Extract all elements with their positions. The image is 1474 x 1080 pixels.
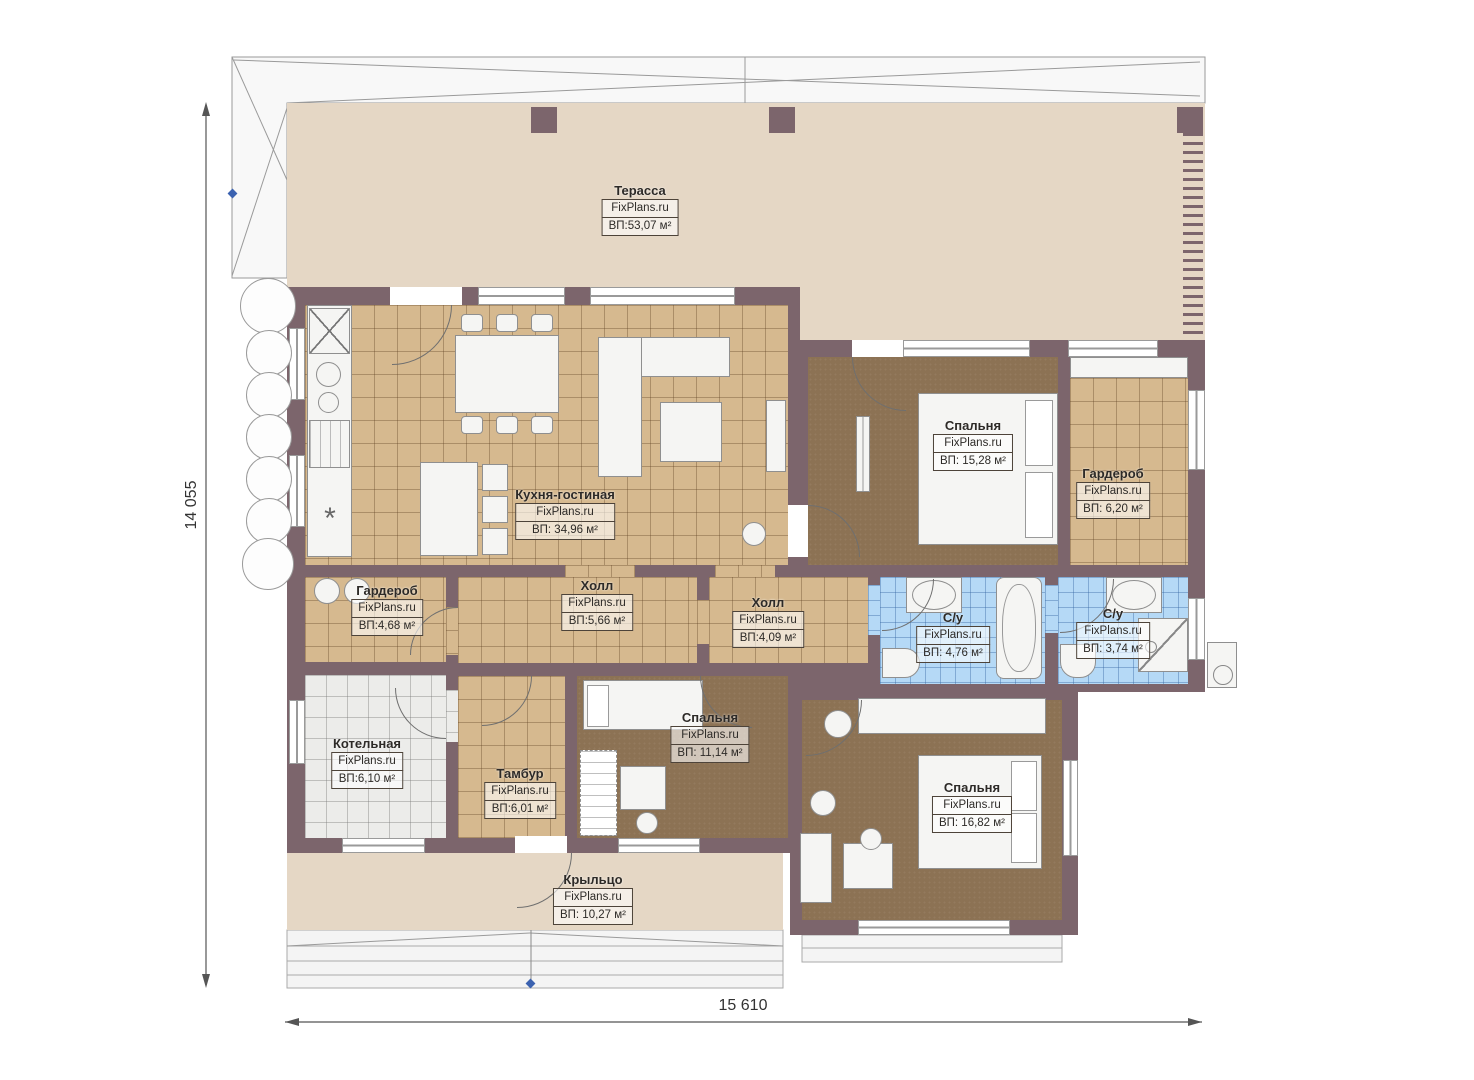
room-area: ВП: 10,27 м² xyxy=(553,906,633,925)
column xyxy=(531,107,557,133)
closet xyxy=(580,750,617,836)
terrace-railing xyxy=(1183,133,1203,343)
watermark: FixPlans.ru xyxy=(670,726,749,745)
room-name: Кухня-гостиная xyxy=(515,487,615,502)
watermark: FixPlans.ru xyxy=(515,503,615,522)
door-gap xyxy=(788,505,808,557)
watermark: FixPlans.ru xyxy=(933,434,1013,453)
bench xyxy=(800,833,832,903)
room-name: С/у xyxy=(1076,606,1150,621)
wardrobe-shelf xyxy=(1070,357,1188,378)
watermark: FixPlans.ru xyxy=(732,611,804,630)
window xyxy=(478,287,565,305)
room-label-wardrobe-right: Гардероб FixPlans.ru ВП: 6,20 м² xyxy=(1076,466,1150,519)
door-gap xyxy=(515,836,567,853)
window xyxy=(289,700,305,764)
room-area: ВП:53,07 м² xyxy=(602,217,679,236)
coffee-table xyxy=(660,402,722,462)
shrub xyxy=(240,278,296,334)
room-label-hall2: Холл FixPlans.ru ВП:4,09 м² xyxy=(732,595,804,648)
room-name: Гардероб xyxy=(1076,466,1150,481)
radiator xyxy=(856,416,870,492)
room-name: С/у xyxy=(916,610,990,625)
pillow xyxy=(1025,400,1053,466)
watermark: FixPlans.ru xyxy=(331,752,403,771)
fridge-symbol: * xyxy=(310,495,350,543)
pillow xyxy=(1011,813,1037,863)
bathtub xyxy=(996,577,1042,679)
watermark: FixPlans.ru xyxy=(1076,482,1150,501)
door-gap xyxy=(390,287,462,305)
desk xyxy=(620,766,666,810)
opening xyxy=(446,690,458,742)
opening xyxy=(1045,585,1058,633)
room-area: ВП: 6,20 м² xyxy=(1076,500,1150,519)
toilet xyxy=(882,648,920,678)
column xyxy=(769,107,795,133)
sink-bowl xyxy=(318,392,339,413)
room-label-hall1: Холл FixPlans.ru ВП:5,66 м² xyxy=(561,578,633,631)
door-gap xyxy=(852,340,906,357)
wardrobe-unit xyxy=(858,698,1046,734)
sofa-chaise xyxy=(598,337,642,477)
watermark: FixPlans.ru xyxy=(561,594,633,613)
watermark: FixPlans.ru xyxy=(351,599,423,618)
room-name: Гардероб xyxy=(351,583,423,598)
room-name: Спальня xyxy=(670,710,749,725)
shrub xyxy=(246,456,292,502)
kitchen-cabinet xyxy=(309,420,350,468)
terrace-floor-right xyxy=(800,287,1205,340)
window xyxy=(1188,598,1205,660)
room-area: ВП: 16,82 м² xyxy=(932,814,1012,833)
chair xyxy=(636,812,658,834)
watermark: FixPlans.ru xyxy=(916,626,990,645)
chair xyxy=(461,314,483,332)
outdoor-unit xyxy=(1207,642,1237,688)
outdoor-unit-fan xyxy=(1213,665,1233,685)
pillow xyxy=(587,685,609,727)
room-label-bath1: С/у FixPlans.ru ВП: 4,76 м² xyxy=(916,610,990,663)
room-area: ВП: 34,96 м² xyxy=(515,521,615,540)
shrub xyxy=(246,414,292,460)
room-label-boiler: Котельная FixPlans.ru ВП:6,10 м² xyxy=(331,736,403,789)
room-label-bedroom1: Спальня FixPlans.ru ВП: 15,28 м² xyxy=(933,418,1013,471)
wall-segment xyxy=(790,565,1205,577)
room-name: Спальня xyxy=(932,780,1012,795)
room-name: Холл xyxy=(732,595,804,610)
window xyxy=(903,340,1030,357)
pillow xyxy=(1011,761,1037,811)
room-name: Крыльцо xyxy=(553,872,633,887)
column xyxy=(1177,107,1203,133)
bathtub-basin xyxy=(1002,584,1036,672)
room-label-kitchen: Кухня-гостиная FixPlans.ru ВП: 34,96 м² xyxy=(515,487,615,540)
room-label-wardrobe-left: Гардероб FixPlans.ru ВП:4,68 м² xyxy=(351,583,423,636)
room-name: Котельная xyxy=(331,736,403,751)
wall-segment xyxy=(565,676,577,838)
room-name: Терасса xyxy=(602,183,679,198)
room-label-bath2: С/у FixPlans.ru ВП: 3,74 м² xyxy=(1076,606,1150,659)
room-area: ВП: 15,28 м² xyxy=(933,452,1013,471)
chair xyxy=(531,416,553,434)
pillow xyxy=(1025,472,1053,538)
room-area: ВП:6,10 м² xyxy=(331,770,403,789)
room-area: ВП: 11,14 м² xyxy=(670,744,749,763)
room-label-terrace: Терасса FixPlans.ru ВП:53,07 м² xyxy=(602,183,679,236)
dining-table xyxy=(455,335,559,413)
window xyxy=(1188,390,1205,470)
wall-segment xyxy=(458,663,480,676)
rug xyxy=(742,522,766,546)
room-area: ВП:4,09 м² xyxy=(732,629,804,648)
room-name: Холл xyxy=(561,578,633,593)
opening xyxy=(565,565,635,577)
window xyxy=(590,287,735,305)
room-area: ВП: 4,76 м² xyxy=(916,644,990,663)
window xyxy=(618,838,700,853)
room-label-bedroom2: Спальня FixPlans.ru ВП: 11,14 м² xyxy=(670,710,749,763)
desk xyxy=(843,843,893,889)
room-name: Спальня xyxy=(933,418,1013,433)
window xyxy=(1068,340,1158,357)
tv-stand xyxy=(766,400,786,472)
watermark: FixPlans.ru xyxy=(553,888,633,907)
sink-bowl xyxy=(316,362,341,387)
watermark: FixPlans.ru xyxy=(932,796,1012,815)
stove xyxy=(309,308,350,354)
kitchen-unit xyxy=(482,464,508,491)
room-label-bedroom3: Спальня FixPlans.ru ВП: 16,82 м² xyxy=(932,780,1012,833)
wall-segment xyxy=(305,662,446,675)
wall-segment xyxy=(1058,357,1070,565)
shrub xyxy=(242,538,294,590)
wall-segment xyxy=(532,663,700,676)
opening xyxy=(715,565,775,577)
wall-segment xyxy=(752,663,788,676)
window xyxy=(342,838,425,853)
chair xyxy=(496,416,518,434)
room-label-vestibule: Тамбур FixPlans.ru ВП:6,01 м² xyxy=(484,766,556,819)
opening xyxy=(868,585,880,635)
room-area: ВП: 3,74 м² xyxy=(1076,640,1150,659)
kitchen-unit xyxy=(482,528,508,555)
kitchen-unit xyxy=(482,496,508,523)
washer xyxy=(314,578,340,604)
room-name: Тамбур xyxy=(484,766,556,781)
room-area: ВП:6,01 м² xyxy=(484,800,556,819)
shrub xyxy=(246,372,292,418)
shrub xyxy=(246,330,292,376)
window xyxy=(1063,760,1078,856)
room-label-porch: Крыльцо FixPlans.ru ВП: 10,27 м² xyxy=(553,872,633,925)
watermark: FixPlans.ru xyxy=(1076,622,1150,641)
room-area: ВП:4,68 м² xyxy=(351,617,423,636)
watermark: FixPlans.ru xyxy=(484,782,556,801)
kitchen-island xyxy=(420,462,478,556)
chair xyxy=(461,416,483,434)
terrace-floor xyxy=(287,103,1205,287)
room-area: ВП:5,66 м² xyxy=(561,612,633,631)
chair xyxy=(860,828,882,850)
watermark: FixPlans.ru xyxy=(602,199,679,218)
chair xyxy=(531,314,553,332)
floor-plan: * xyxy=(0,0,1474,1080)
chair xyxy=(496,314,518,332)
armchair xyxy=(810,790,836,816)
window xyxy=(858,920,1010,935)
opening xyxy=(697,600,709,644)
